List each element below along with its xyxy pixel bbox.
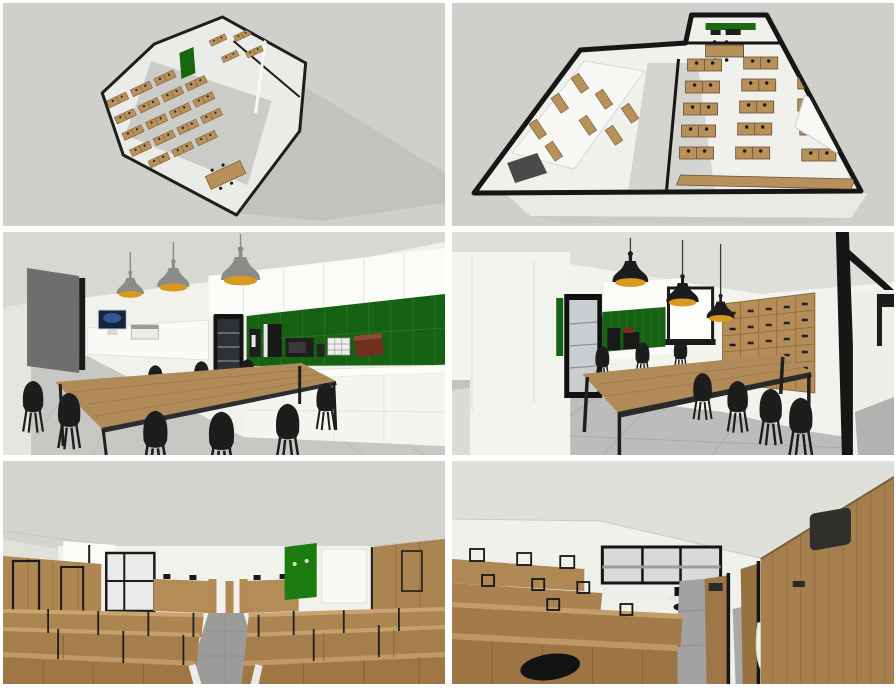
window: [106, 553, 154, 611]
right-desk-rows: [242, 607, 445, 684]
kitchen-green-strip: [706, 23, 756, 30]
panel-openspace-close: [452, 461, 894, 684]
panel-kitchen-a: [3, 232, 445, 455]
panel-aerial-near: [452, 3, 894, 226]
window: [602, 547, 720, 583]
panel-kitchen-b: [452, 232, 894, 455]
render-collage: [0, 0, 896, 688]
panel-openspace-aisle: [3, 461, 445, 684]
sliding-door: [27, 268, 79, 373]
fridge: [213, 314, 243, 376]
green-board: [285, 543, 317, 600]
printer: [131, 325, 158, 339]
base-platform: [507, 193, 868, 218]
left-desk-rows: [3, 609, 203, 684]
storage-cubby: [810, 508, 851, 550]
panel-aerial-far: [3, 3, 445, 226]
